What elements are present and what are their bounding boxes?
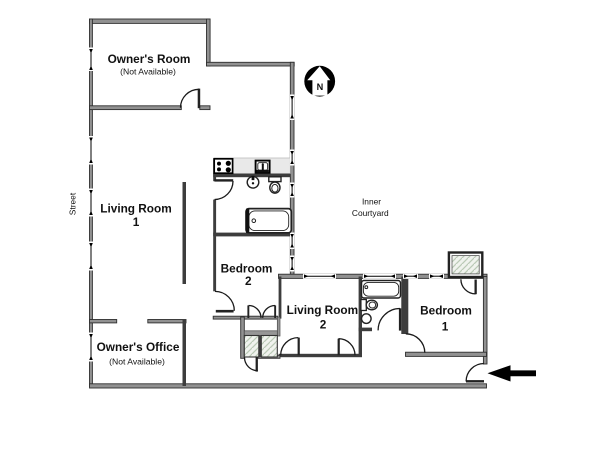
svg-text:2: 2 [320, 318, 327, 332]
svg-text:Owner's Office: Owner's Office [97, 340, 180, 354]
svg-text:Living Room: Living Room [100, 202, 171, 216]
svg-text:(Not Available): (Not Available) [109, 357, 165, 367]
svg-text:Courtyard: Courtyard [352, 208, 389, 218]
svg-text:1: 1 [442, 319, 449, 333]
svg-text:2: 2 [245, 274, 252, 288]
svg-text:Owner's Room: Owner's Room [108, 52, 191, 66]
svg-text:Bedroom: Bedroom [420, 304, 472, 318]
svg-text:Street: Street [67, 192, 77, 215]
svg-text:1: 1 [133, 215, 140, 229]
svg-text:(Not Available): (Not Available) [120, 66, 176, 76]
svg-text:Inner: Inner [362, 197, 381, 207]
svg-text:N: N [317, 82, 324, 92]
svg-text:Living Room: Living Room [287, 303, 358, 317]
